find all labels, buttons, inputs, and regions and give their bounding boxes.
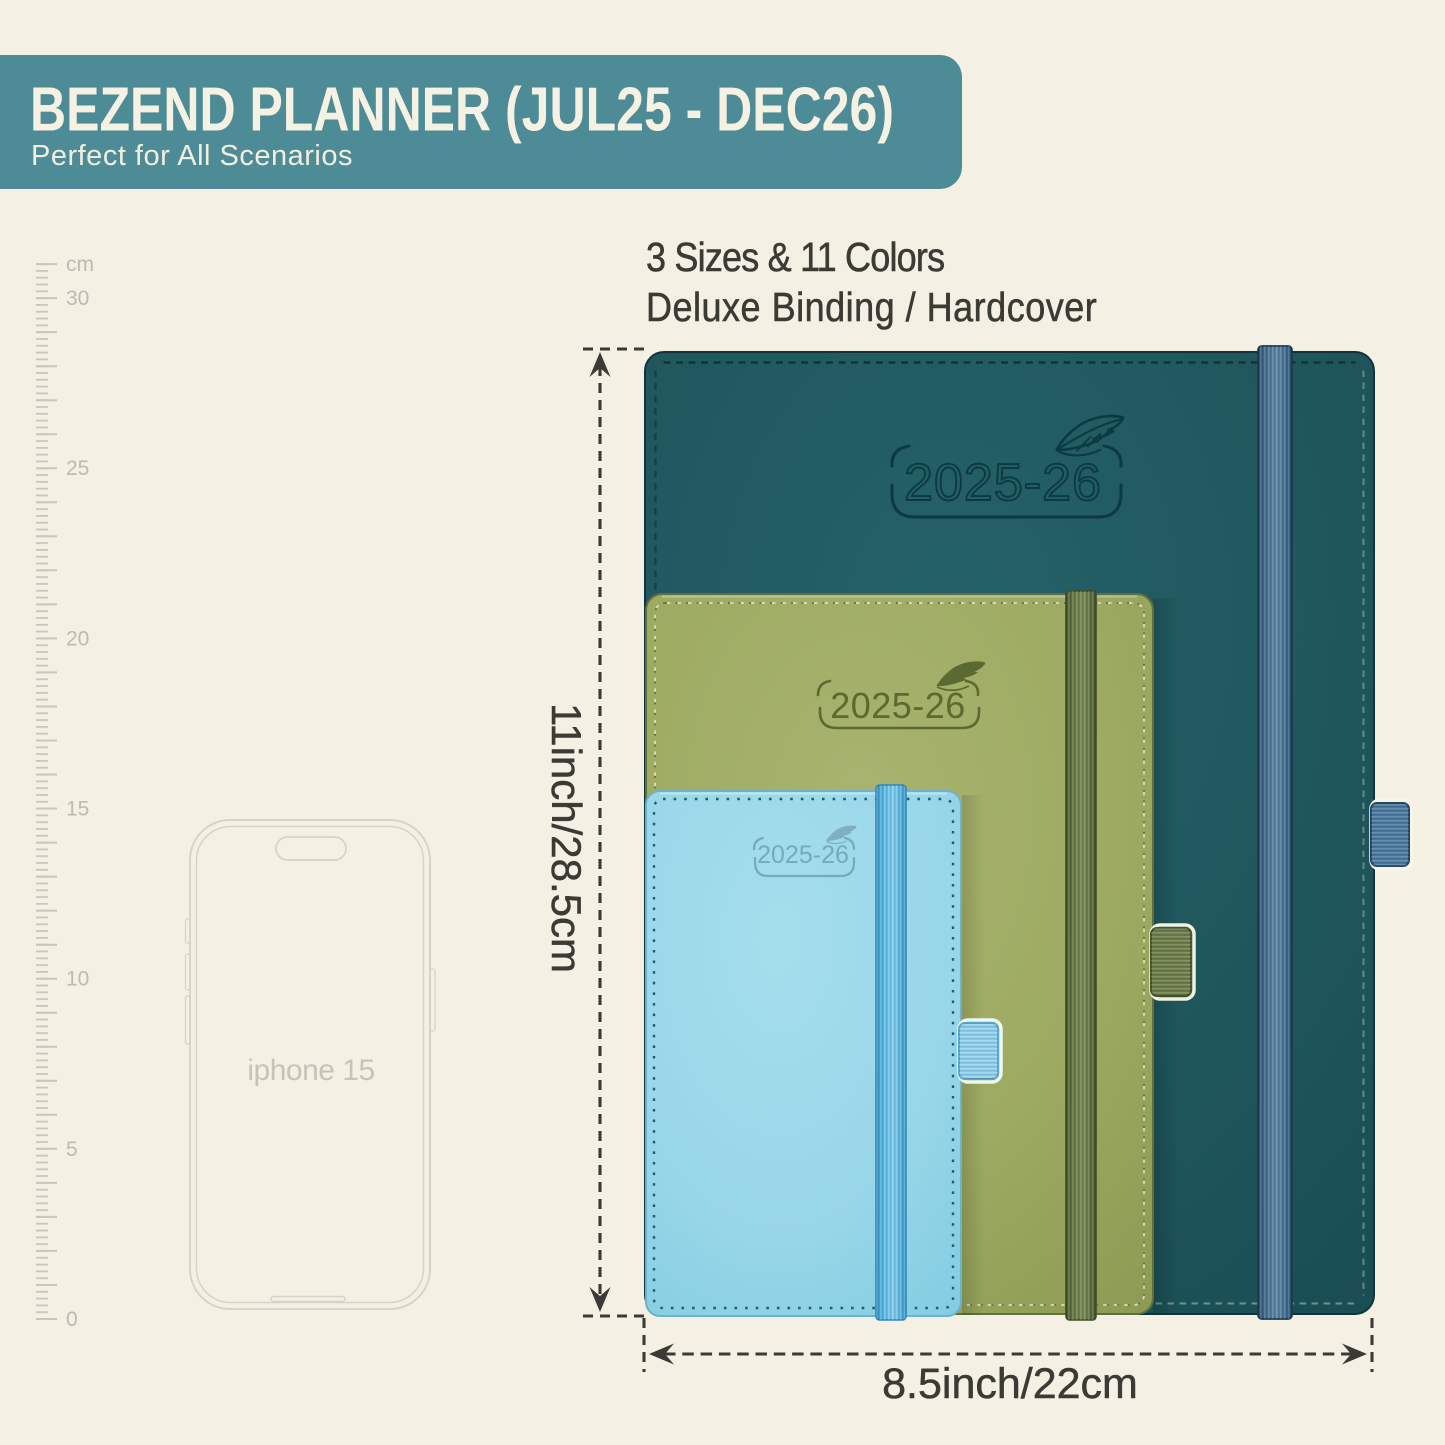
svg-text:15: 15	[66, 798, 89, 821]
svg-text:0: 0	[66, 1308, 78, 1331]
svg-text:30: 30	[66, 287, 89, 310]
svg-text:iphone 15: iphone 15	[247, 1054, 374, 1087]
svg-text:5: 5	[66, 1138, 78, 1161]
svg-text:10: 10	[66, 968, 89, 991]
svg-text:25: 25	[66, 457, 89, 480]
svg-text:20: 20	[66, 627, 89, 650]
svg-text:2025-26: 2025-26	[830, 685, 966, 726]
svg-text:2025-26: 2025-26	[904, 454, 1102, 512]
svg-text:2025-26: 2025-26	[757, 841, 849, 869]
svg-text:cm: cm	[66, 253, 94, 276]
